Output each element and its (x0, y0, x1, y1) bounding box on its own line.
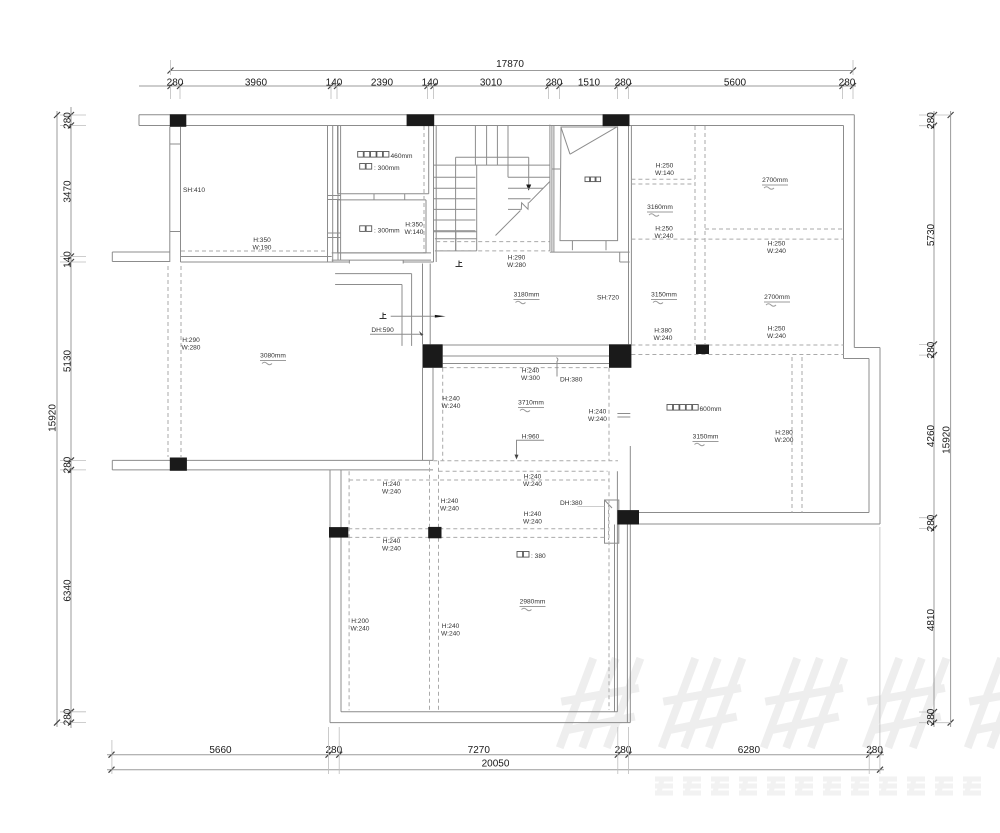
svg-text:7270: 7270 (468, 745, 491, 756)
svg-text:280: 280 (926, 341, 937, 358)
svg-text:280: 280 (63, 456, 74, 473)
svg-text:H:250: H:250 (768, 326, 786, 333)
svg-text:140: 140 (326, 77, 343, 88)
svg-text:6340: 6340 (63, 579, 74, 602)
svg-text:: 300mm: : 300mm (374, 227, 400, 234)
svg-text:5660: 5660 (209, 745, 232, 756)
svg-text:: 300mm: : 300mm (374, 165, 400, 172)
svg-text:W:240: W:240 (442, 403, 461, 410)
svg-text:280: 280 (839, 77, 856, 88)
svg-text:W:240: W:240 (441, 631, 460, 638)
svg-text:H:240: H:240 (524, 511, 542, 518)
svg-text:W:140: W:140 (405, 229, 424, 236)
svg-text:W:240: W:240 (440, 506, 459, 513)
svg-text:6280: 6280 (738, 745, 761, 756)
svg-text:280: 280 (167, 77, 184, 88)
svg-text:W:240: W:240 (767, 248, 786, 255)
svg-text:W:240: W:240 (655, 233, 674, 240)
svg-text:5730: 5730 (926, 223, 937, 246)
svg-text:H:240: H:240 (524, 474, 542, 481)
svg-text:SH:720: SH:720 (597, 295, 619, 302)
svg-text:H:250: H:250 (655, 226, 673, 233)
svg-text:280: 280 (63, 112, 74, 129)
svg-text:4260: 4260 (926, 424, 937, 447)
svg-text:H:350: H:350 (405, 222, 423, 229)
svg-text:3710mm: 3710mm (518, 400, 544, 407)
svg-text:H:240: H:240 (383, 481, 401, 488)
svg-text:H:280: H:280 (775, 430, 793, 437)
svg-text:17870: 17870 (496, 59, 524, 70)
svg-text:DH:380: DH:380 (560, 377, 583, 384)
svg-text:280: 280 (926, 112, 937, 129)
svg-text:W:240: W:240 (588, 416, 607, 423)
svg-text:280: 280 (325, 745, 342, 756)
svg-text:W:240: W:240 (382, 546, 401, 553)
svg-text:H:240: H:240 (522, 368, 540, 375)
svg-text:280: 280 (615, 77, 632, 88)
svg-text:280: 280 (546, 77, 563, 88)
svg-text:W:200: W:200 (775, 437, 794, 444)
svg-text:SH:410: SH:410 (183, 187, 205, 194)
svg-text:W:240: W:240 (767, 333, 786, 340)
svg-text:460mm: 460mm (391, 153, 413, 160)
svg-text:2700mm: 2700mm (762, 177, 788, 184)
svg-text:20050: 20050 (482, 759, 510, 770)
svg-text:280: 280 (615, 745, 632, 756)
svg-text:3180mm: 3180mm (514, 292, 540, 299)
svg-text:W:240: W:240 (523, 481, 542, 488)
svg-text:2980mm: 2980mm (520, 599, 546, 606)
svg-text:3160mm: 3160mm (647, 204, 673, 211)
svg-text:H:960: H:960 (522, 434, 540, 441)
svg-text:H:290: H:290 (508, 255, 526, 262)
svg-text:H:350: H:350 (253, 237, 271, 244)
svg-text:3150mm: 3150mm (693, 434, 719, 441)
svg-text:4810: 4810 (926, 608, 937, 631)
svg-text:3010: 3010 (480, 77, 503, 88)
svg-text:W:240: W:240 (523, 519, 542, 526)
svg-text:W:300: W:300 (521, 375, 540, 382)
svg-text:H:250: H:250 (768, 241, 786, 248)
svg-text:DH:590: DH:590 (371, 327, 394, 334)
svg-text:: 380: : 380 (531, 553, 546, 560)
svg-text:280: 280 (63, 708, 74, 725)
svg-text:DH:380: DH:380 (560, 500, 583, 507)
svg-text:W:240: W:240 (654, 335, 673, 342)
svg-text:3150mm: 3150mm (651, 292, 677, 299)
svg-text:H:240: H:240 (589, 409, 607, 416)
svg-text:W:140: W:140 (655, 170, 674, 177)
svg-text:600mm: 600mm (700, 406, 722, 413)
svg-text:W:190: W:190 (253, 245, 272, 252)
svg-text:H:240: H:240 (383, 538, 401, 545)
svg-text:H:240: H:240 (441, 498, 459, 505)
svg-text:W:240: W:240 (351, 626, 370, 633)
svg-text:3080mm: 3080mm (260, 353, 286, 360)
svg-text:2700mm: 2700mm (764, 294, 790, 301)
svg-text:H:240: H:240 (442, 623, 460, 630)
svg-text:280: 280 (926, 708, 937, 725)
svg-text:W:280: W:280 (182, 345, 201, 352)
svg-text:3470: 3470 (63, 180, 74, 203)
svg-text:280: 280 (926, 514, 937, 531)
svg-text:H:250: H:250 (656, 163, 674, 170)
svg-text:5600: 5600 (724, 77, 747, 88)
svg-text:H:200: H:200 (351, 618, 369, 625)
svg-text:W:280: W:280 (507, 262, 526, 269)
svg-text:W:240: W:240 (382, 489, 401, 496)
svg-text:H:290: H:290 (182, 337, 200, 344)
svg-text:5130: 5130 (63, 349, 74, 372)
svg-text:1510: 1510 (578, 77, 601, 88)
svg-text:140: 140 (422, 77, 439, 88)
svg-text:H:240: H:240 (442, 396, 460, 403)
svg-text:H:380: H:380 (654, 328, 672, 335)
svg-text:2390: 2390 (371, 77, 394, 88)
svg-text:3960: 3960 (245, 77, 268, 88)
svg-text:140: 140 (63, 251, 74, 268)
